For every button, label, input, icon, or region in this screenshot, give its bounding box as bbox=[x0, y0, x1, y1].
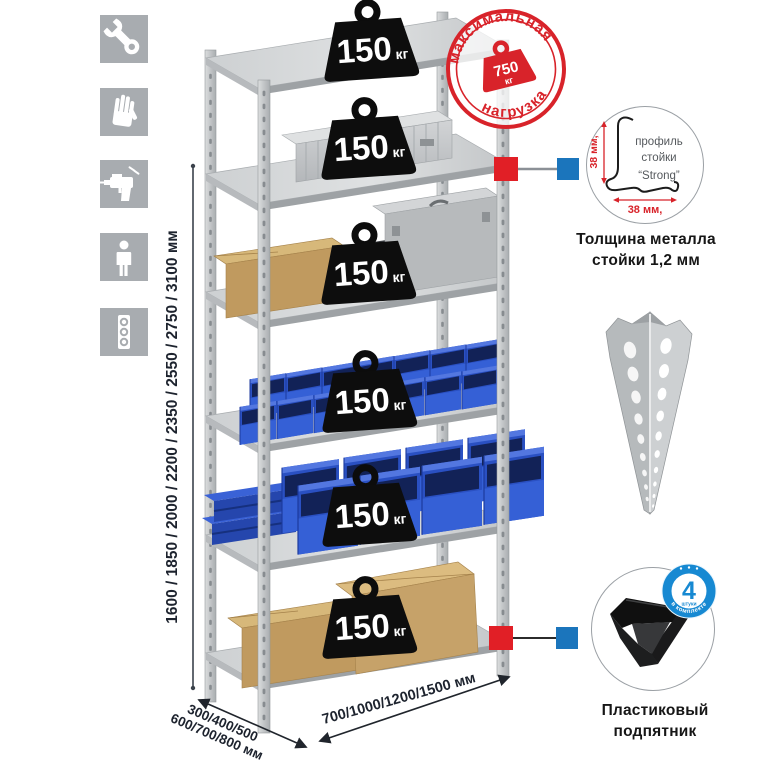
svg-text:“Strong”: “Strong” bbox=[638, 170, 680, 182]
svg-text:кг: кг bbox=[395, 45, 409, 62]
profile-caption: Толщина металла стойки 1,2 мм bbox=[571, 229, 721, 271]
connector-red-marker bbox=[489, 626, 513, 650]
svg-text:кг: кг bbox=[392, 143, 406, 160]
svg-text:кг: кг bbox=[393, 396, 407, 413]
profile-callout-connector bbox=[494, 157, 579, 181]
svg-text:150: 150 bbox=[333, 381, 391, 422]
svg-text:кг: кг bbox=[392, 268, 406, 285]
wrench-icon bbox=[100, 15, 148, 63]
svg-text:38 мм,: 38 мм, bbox=[588, 135, 600, 168]
svg-text:150: 150 bbox=[332, 128, 390, 169]
svg-text:150: 150 bbox=[333, 607, 391, 648]
height-dimension: 1600 / 1850 / 2000 / 2200 / 2350 / 2550 … bbox=[164, 164, 195, 690]
svg-text:штуки: штуки bbox=[681, 602, 696, 608]
quantity-badge: 4 штуки в комплекте bbox=[661, 563, 717, 619]
person-icon bbox=[100, 233, 148, 281]
connector-red-marker bbox=[494, 157, 518, 181]
width-dimension-label: 700/1000/1200/1500 мм bbox=[320, 670, 477, 728]
sidebar-icon-tile bbox=[100, 15, 148, 63]
connector-blue-marker bbox=[556, 627, 578, 649]
foot-caption: Пластиковый подпятник bbox=[580, 700, 730, 742]
depth-dimension: 300/400/500 600/700/800 мм bbox=[168, 697, 306, 763]
weight-badge-1: 150 кг bbox=[320, 0, 420, 82]
perforated-angle-post-image bbox=[596, 298, 706, 533]
svg-text:150: 150 bbox=[333, 495, 391, 536]
max-load-stamp: максимальная нагрузка 750 кг bbox=[441, 4, 571, 134]
height-dimension-label: 1600 / 1850 / 2000 / 2200 / 2350 / 2550 … bbox=[164, 230, 181, 624]
sidebar-icon-tile bbox=[100, 233, 148, 281]
profile-dim-horizontal bbox=[613, 197, 677, 203]
svg-text:кг: кг bbox=[393, 510, 407, 527]
svg-text:профиль: профиль bbox=[635, 136, 683, 148]
level-icon bbox=[100, 308, 148, 356]
svg-text:стойки: стойки bbox=[641, 152, 676, 164]
gloves-icon bbox=[100, 88, 148, 136]
sidebar-icon-tile bbox=[100, 308, 148, 356]
svg-text:кг: кг bbox=[393, 622, 407, 639]
width-dimension: 700/1000/1200/1500 мм bbox=[320, 670, 509, 741]
sidebar-icon-tile bbox=[100, 160, 148, 208]
connector-blue-marker bbox=[557, 158, 579, 180]
profile-detail-circle: 38 мм, 38 мм, профиль стойки “Strong” bbox=[586, 106, 704, 224]
drill-icon bbox=[100, 160, 148, 208]
profile-dim-vertical bbox=[601, 121, 607, 184]
weight-badge-2: 150 кг bbox=[317, 97, 417, 180]
foot-callout-connector bbox=[489, 626, 578, 650]
svg-text:150: 150 bbox=[335, 30, 393, 71]
svg-text:150: 150 bbox=[332, 253, 390, 294]
svg-text:38 мм,: 38 мм, bbox=[628, 204, 663, 216]
sidebar-icon-tile bbox=[100, 88, 148, 136]
